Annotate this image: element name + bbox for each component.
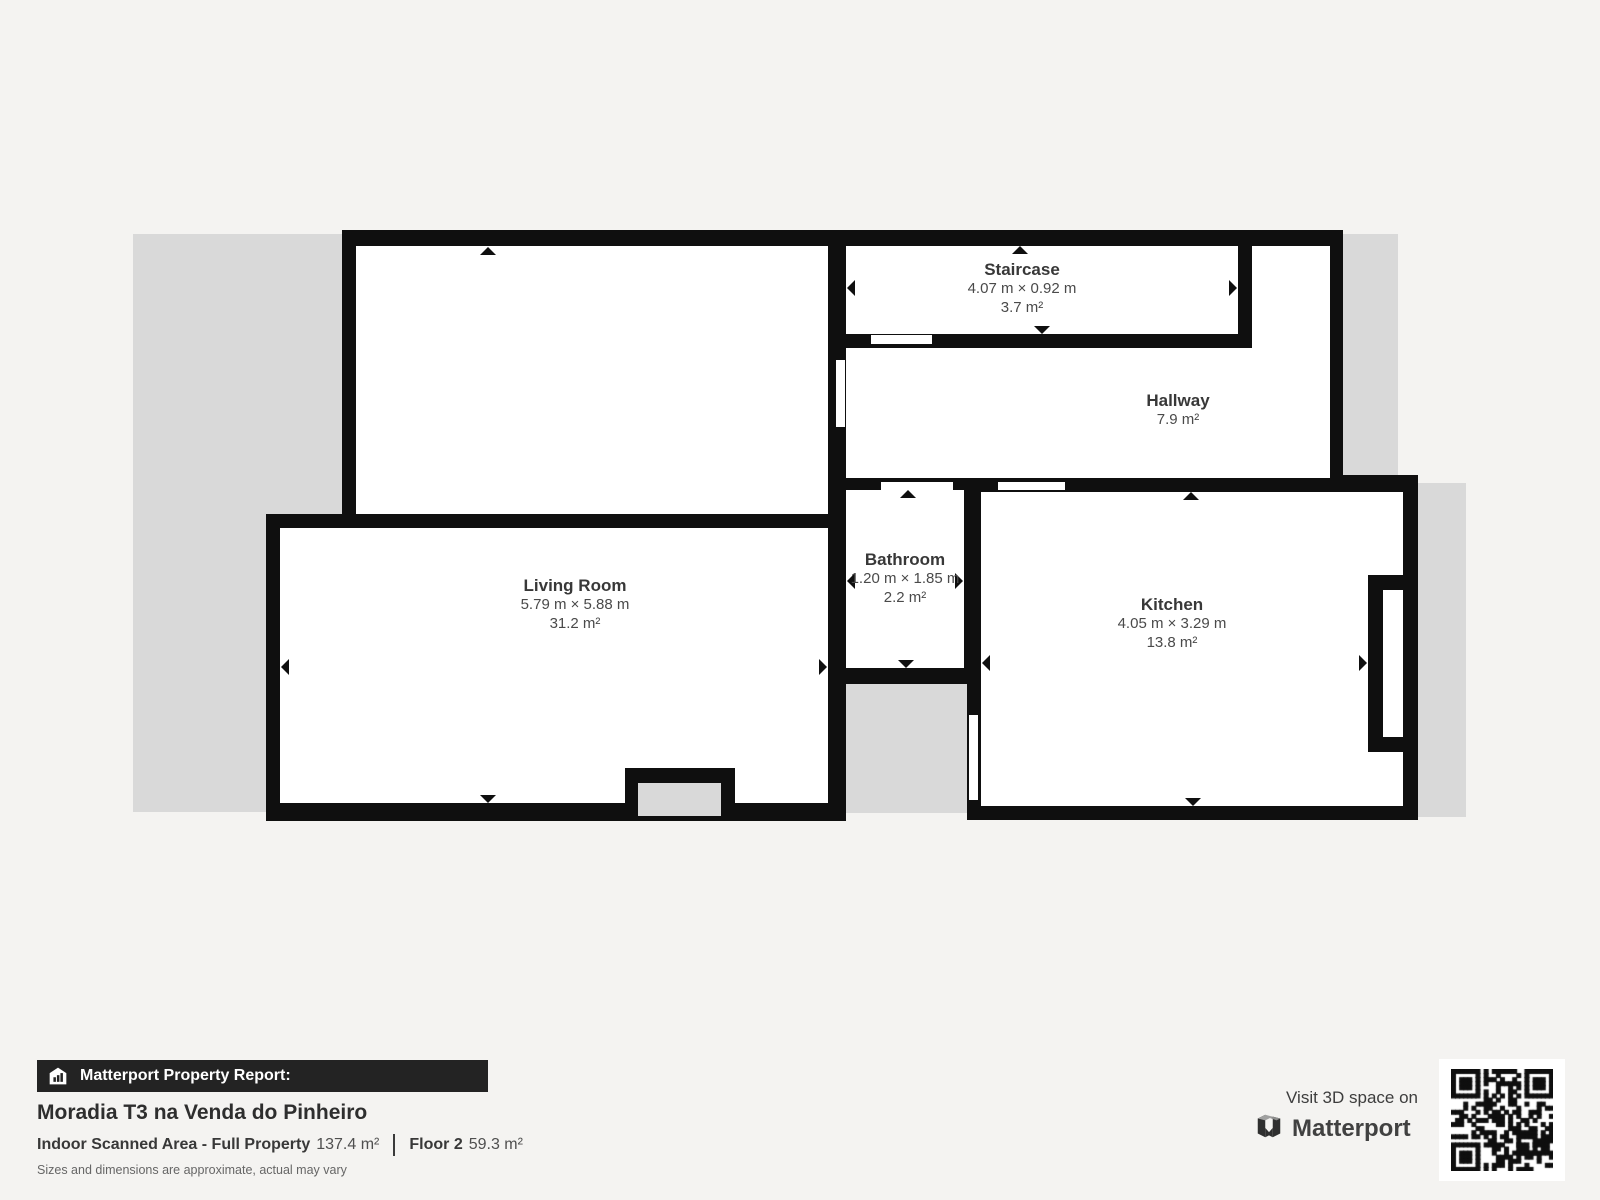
door-opening-hallway-bathroom (881, 482, 953, 490)
measure-arrow-left (982, 655, 990, 671)
area-info-line: Indoor Scanned Area - Full Property 137.… (37, 1134, 523, 1156)
room-area: 13.8 m² (1118, 633, 1227, 652)
measure-arrow-down (480, 795, 496, 803)
door-opening-kitchen-left (969, 715, 978, 800)
unscanned-area-below-bathroom (846, 684, 967, 813)
matterport-wordmark: Matterport (1292, 1115, 1411, 1143)
measure-arrow-down (898, 660, 914, 668)
divider (393, 1134, 395, 1156)
unscanned-nook (638, 783, 721, 816)
room-area: 2.2 m² (851, 588, 960, 607)
floor-plan-report: Living Room 5.79 m × 5.88 m 31.2 m² Stai… (0, 0, 1600, 1200)
room-dimensions: 4.05 m × 3.29 m (1118, 614, 1227, 633)
room-name: Staircase (968, 260, 1077, 279)
floor-label: Floor 2 (409, 1136, 462, 1154)
room-dimensions: 4.07 m × 0.92 m (968, 279, 1077, 298)
disclaimer-text: Sizes and dimensions are approximate, ac… (37, 1163, 347, 1177)
measure-arrow-down (1185, 798, 1201, 806)
room-hallway-arm (1252, 246, 1330, 348)
unscanned-area-upper-right (1343, 234, 1398, 478)
room-name: Living Room (521, 576, 630, 595)
measure-arrow-right (1229, 280, 1237, 296)
qr-code-pattern (1451, 1069, 1553, 1171)
room-area: 31.2 m² (521, 614, 630, 633)
door-opening-hallway-kitchen (998, 482, 1065, 490)
floor-value: 59.3 m² (469, 1136, 523, 1154)
matterport-logo-icon (1254, 1110, 1284, 1147)
scanned-area-label: Indoor Scanned Area - Full Property (37, 1136, 310, 1154)
report-label: Matterport Property Report: (80, 1067, 291, 1085)
building-icon (48, 1066, 68, 1086)
room-area: 3.7 m² (968, 298, 1077, 317)
room-label-bathroom: Bathroom 1.20 m × 1.85 m 2.2 m² (851, 550, 960, 607)
measure-arrow-down (1034, 326, 1050, 334)
room-hallway-main (846, 348, 1330, 478)
measure-arrow-left (847, 280, 855, 296)
measure-arrow-up (480, 247, 496, 255)
room-label-staircase: Staircase 4.07 m × 0.92 m 3.7 m² (968, 260, 1077, 317)
room-dimensions: 5.79 m × 5.88 m (521, 595, 630, 614)
scanned-area-value: 137.4 m² (316, 1136, 379, 1154)
door-opening-living-hallway (836, 360, 845, 427)
measure-arrow-up (1012, 246, 1028, 254)
measure-arrow-right (1359, 655, 1367, 671)
visit-3d-caption: Visit 3D space on (1286, 1088, 1418, 1108)
measure-arrow-right (819, 659, 827, 675)
measure-arrow-up (900, 490, 916, 498)
kitchen-recess (1383, 590, 1403, 737)
room-living-upper (356, 246, 828, 514)
room-dimensions: 1.20 m × 1.85 m (851, 569, 960, 588)
unscanned-area-lower-right (1417, 483, 1466, 817)
door-opening-staircase (871, 335, 932, 344)
matterport-brand: Matterport (1254, 1110, 1411, 1147)
measure-arrow-left (281, 659, 289, 675)
room-living-lower (280, 528, 828, 803)
report-header-bar: Matterport Property Report: (37, 1060, 488, 1092)
room-name: Hallway (1146, 391, 1209, 410)
qr-code (1439, 1059, 1565, 1181)
room-name: Bathroom (851, 550, 960, 569)
room-label-living: Living Room 5.79 m × 5.88 m 31.2 m² (521, 576, 630, 633)
room-area: 7.9 m² (1146, 410, 1209, 429)
measure-arrow-up (1183, 492, 1199, 500)
property-name: Moradia T3 na Venda do Pinheiro (37, 1101, 367, 1125)
room-label-hallway: Hallway 7.9 m² (1146, 391, 1209, 429)
room-label-kitchen: Kitchen 4.05 m × 3.29 m 13.8 m² (1118, 595, 1227, 652)
room-name: Kitchen (1118, 595, 1227, 614)
